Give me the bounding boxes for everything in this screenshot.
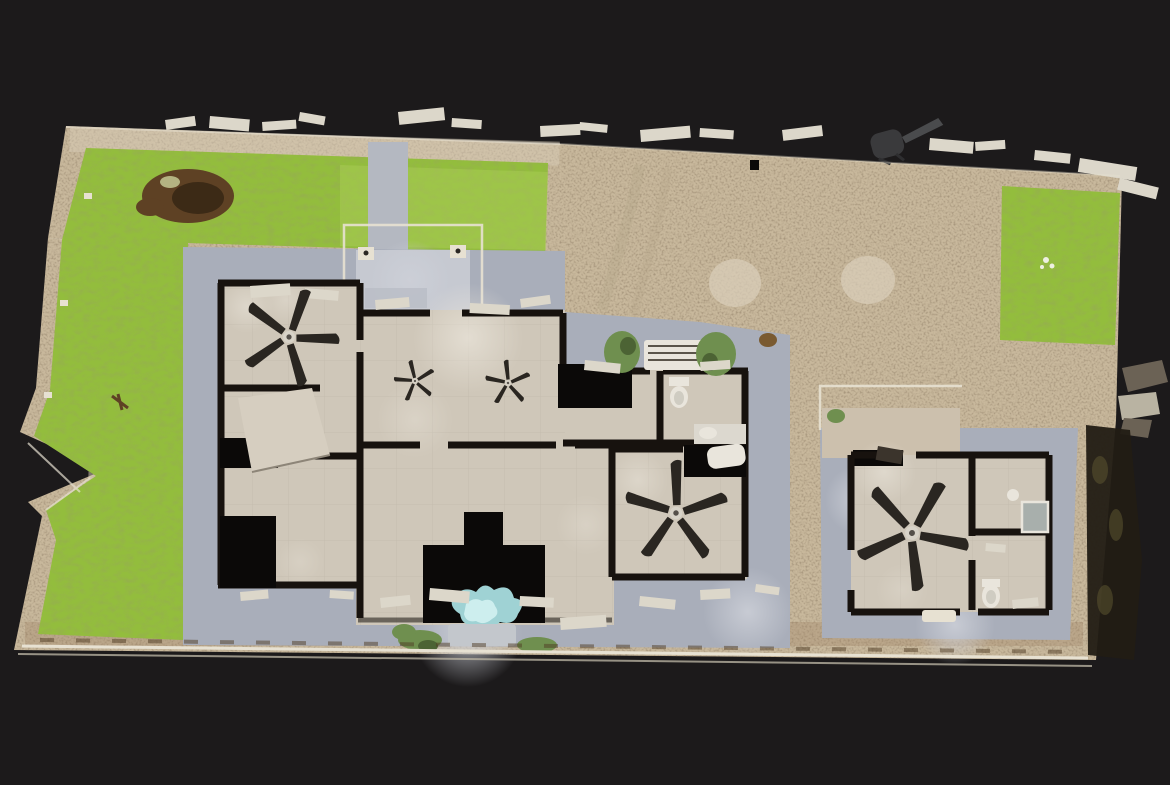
pool-step-slab bbox=[448, 624, 516, 646]
porch-post-anchor bbox=[456, 249, 461, 254]
patio-plant bbox=[827, 409, 845, 423]
bare-dirt-patch-core bbox=[172, 182, 224, 214]
right-lawn-texture bbox=[1000, 186, 1120, 345]
shower-pan bbox=[1022, 502, 1048, 532]
toilet-seat bbox=[674, 391, 684, 405]
guest-toilet-seat bbox=[986, 590, 996, 604]
dirt-patch-rim bbox=[160, 176, 180, 188]
brush-tuft bbox=[759, 333, 777, 347]
gravel-light-patch bbox=[709, 259, 761, 307]
porch-post-anchor bbox=[364, 251, 369, 256]
utility-box bbox=[750, 160, 759, 170]
toilet-tank bbox=[669, 377, 689, 386]
collapsed-floor-void bbox=[220, 516, 276, 588]
bare-dirt-spot bbox=[136, 198, 164, 216]
scan-viewer[interactable] bbox=[0, 0, 1170, 785]
bench bbox=[644, 340, 704, 370]
threshold-slab bbox=[922, 610, 956, 622]
orthographic-scan-canvas[interactable] bbox=[0, 0, 1170, 785]
gravel-light-patch bbox=[841, 256, 895, 304]
bath-fixture bbox=[1007, 489, 1019, 501]
front-walkway bbox=[368, 142, 408, 258]
sink-bowl bbox=[699, 427, 717, 439]
plant-shadow bbox=[620, 337, 636, 355]
